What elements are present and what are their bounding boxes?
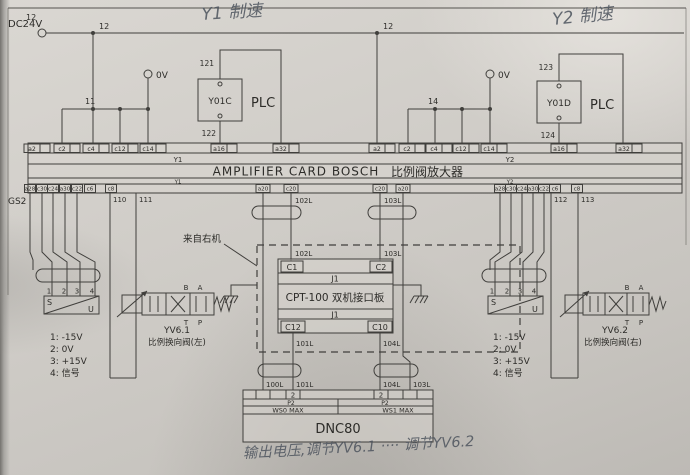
terminal-label: c6 [87,187,94,193]
terminal-label: c30 [506,187,517,193]
wire-label-12-left: 12 [99,22,109,31]
valve-spring [649,297,666,311]
pin-number: 2 [505,288,509,296]
plc-right-pin-bottom [557,116,561,120]
cpt100-board: C1 C2 C12 C10 J1 J1 CPT-100 双机接口板 [278,259,393,333]
cable-shield-oval [368,206,416,219]
wire-label-100l: 100L [266,381,283,389]
cable-shield-oval [374,364,418,377]
pin-number: 1 [47,288,51,296]
terminal-label: c22 [72,187,82,193]
pin-number: 4 [532,288,537,296]
schematic-drawing: 12 DC24V 12 12 0V 11 0V 14 121 122 Y01C … [0,0,690,475]
left-valve-circuit: 110 111 B A T P YV6.1 比例换向阀(左) [110,193,232,379]
transducer-s: S [47,298,52,307]
connector-label: C12 [285,323,301,332]
transducer-u: U [532,305,538,314]
terminal-label: a30 [60,187,71,193]
port-p: P [639,319,643,327]
terminal-label: a28 [495,187,506,193]
port-b: B [184,284,189,292]
terminal-label: c22 [539,187,549,193]
terminal-label: a16 [553,146,565,153]
right-transducer-circuit: 1 2 3 4 S U 1: -15V 2: 0V 3: +15V 4: 信号 [482,193,546,380]
wire-label-101l: 101L [296,381,313,389]
valve-name: 比例换向阀(右) [584,337,642,348]
terminal-label: c20 [286,187,297,193]
valve-id: YV6.1 [163,326,190,336]
terminal-label: a32 [275,146,287,153]
wire-label-101l: 101L [296,340,313,348]
terminal-label: c12 [455,146,466,153]
transducer-u: U [88,305,94,314]
dc24v-terminal [38,29,46,37]
gs2-label: GS2 [8,197,26,207]
handwriting-y1-note: Y1 制速 [201,1,266,25]
card-title-zh: 比例阀放大器 [391,164,463,179]
plc-left-label: PLC [251,96,275,111]
card-bottom-terminal-row [28,184,682,193]
card-title-en: AMPLIFIER CARD BOSCH [213,165,380,179]
terminal-label: c6 [552,187,559,193]
wire-label-110: 110 [113,196,126,204]
port-p: P [198,319,202,327]
terminal-label: c8 [574,187,581,193]
wire-label-14: 14 [428,97,438,106]
wire-label-111: 111 [139,196,152,204]
terminal-label: a20 [258,187,269,193]
ov-terminal-right [486,70,494,78]
plc-left-pin-bottom [218,114,222,118]
port-b: B [625,284,630,292]
wire-label-11: 11 [85,97,95,106]
rail-label-y1b: Y1 [174,180,182,186]
terminal-label: c30 [37,187,48,193]
dnc80-title: DNC80 [315,422,360,437]
wire-label-112: 112 [554,196,567,204]
terminal-label: c14 [142,146,153,153]
connector-label: C10 [372,323,388,332]
terminal-label: a20 [398,187,409,193]
ground-symbol-right [393,285,428,303]
cable-shield-oval [258,364,301,377]
wire-label-113: 113 [581,196,594,204]
cable-shield-oval [482,269,546,282]
board-title: CPT-100 双机接口板 [286,291,385,304]
legend-line: 1: -15V [493,333,526,343]
ws-label: WS1 MAX [382,406,414,414]
terminal-label: a28 [25,187,36,193]
remote-note: 来自右机 [183,233,222,245]
pin-number: 3 [75,288,79,296]
legend-line: 1: -15V [50,333,83,343]
ov-terminal-left [144,70,152,78]
wire-label-103l: 103L [384,197,401,205]
valve-name: 比例换向阀(左) [148,337,206,348]
junction-dot [91,107,95,111]
pin-number: 4 [90,288,95,296]
cable-shield-oval [252,206,301,219]
relay-label-y01d: Y01D [546,99,571,109]
wire-label-124: 124 [541,131,556,140]
wire-label-103l-inner: 103L [384,250,401,258]
connector-label: C1 [287,263,298,272]
terminal-label: a32 [618,146,630,153]
wire-label-121: 121 [200,59,215,68]
channel-label: 2 [379,392,383,400]
terminal-label: a2 [373,146,381,153]
cable-shield-oval [36,269,100,282]
wire-label-104l: 104L [383,381,400,389]
transducer-s: S [491,298,496,307]
terminal-label: a2 [28,146,36,153]
wire-label-104l: 104L [383,340,400,348]
legend-line: 2: 0V [493,345,517,355]
wire-label-12-right: 12 [383,22,393,31]
terminal-label: c20 [375,187,386,193]
plc-right-pin-top [557,84,561,88]
pin-number: 1 [490,288,494,296]
j1-label: J1 [330,275,338,284]
terminal-label: c24 [517,187,528,193]
wire-label-122: 122 [202,129,217,138]
legend-line: 2: 0V [50,345,74,355]
right-valve-circuit: 112 113 B A T P YV6.2 比例换向阀(右) [551,193,666,379]
wire-label-103l: 103L [413,381,430,389]
channel-label: 2 [291,392,295,400]
connector-label: C2 [376,263,387,272]
card-rail-bottom [28,178,682,184]
dc24v-label: DC24V [8,19,42,30]
plc-left-pin-top [218,82,222,86]
terminal-label: c2 [403,146,410,153]
valve-spring [214,297,232,311]
terminal-label: c12 [114,146,125,153]
legend-line: 3: +15V [493,357,531,367]
ov-label-right: 0V [498,71,511,81]
legend-line: 4: 信号 [493,367,523,379]
pin-number: 2 [62,288,66,296]
terminal-label: a16 [213,146,225,153]
wire-label-123: 123 [539,63,554,72]
wire-label-102l-inner: 102L [295,250,312,258]
plc-right-label: PLC [590,98,614,113]
wire-label-102l: 102L [295,197,312,205]
relay-label-y01c: Y01C [207,97,231,107]
terminal-label: c4 [87,146,94,153]
legend-line: 3: +15V [50,357,88,367]
terminal-label: c4 [430,146,437,153]
port-a: A [639,284,644,292]
j1-label: J1 [330,311,338,320]
ov-label-left: 0V [156,71,169,81]
terminal-label: c2 [58,146,65,153]
card-rail-top [28,153,682,164]
scanned-schematic-page: 12 DC24V 12 12 0V 11 0V 14 121 122 Y01C … [0,0,690,475]
rail-label-y1a: Y1 [173,156,183,164]
valve-id: YV6.2 [601,326,628,336]
legend-line: 4: 信号 [50,367,80,379]
terminal-label: a30 [528,187,539,193]
terminal-label: c14 [483,146,494,153]
handwriting-y2-note: Y2 制速 [551,3,616,30]
port-a: A [198,284,203,292]
ws-label: WS0 MAX [272,406,304,414]
terminal-label: c24 [48,187,59,193]
rail-label-y2a: Y2 [505,156,515,164]
left-transducer-circuit: 1 2 3 4 S U 1: -15V 2: 0V 3: +15V 4: 信号 [30,193,100,380]
dnc80-assembly: 100L 101L 104L 103L 2 2 P2 P2 WS0 MAX WS… [243,381,433,442]
terminal-label: c8 [108,187,115,193]
